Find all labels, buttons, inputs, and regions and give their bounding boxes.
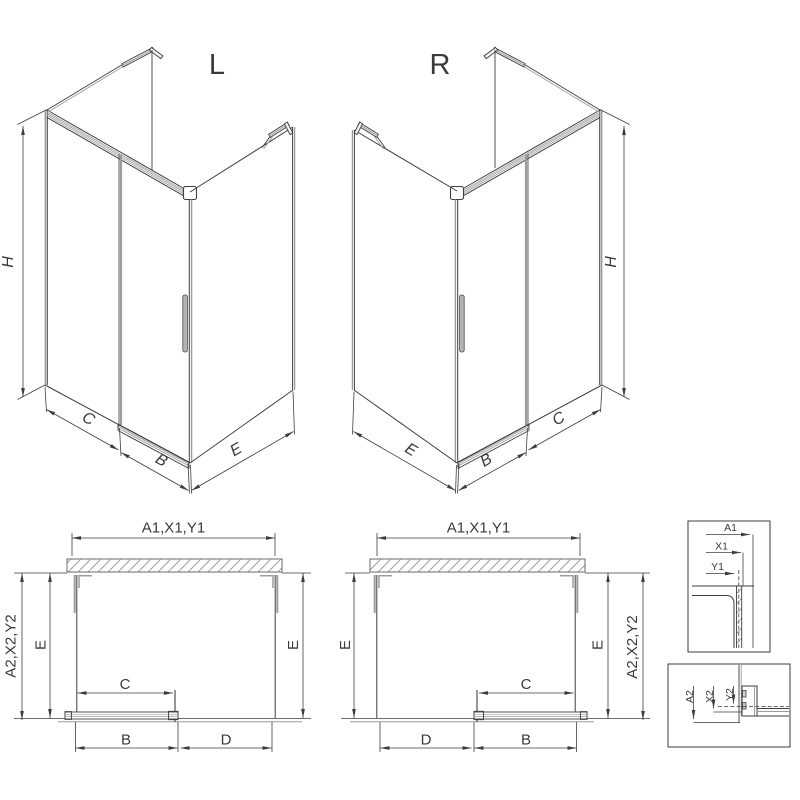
- dim-label-x2: X2: [704, 690, 716, 703]
- detail-view-top: A1 X1 Y1: [688, 521, 770, 652]
- door-handle: [460, 295, 465, 352]
- wall-support-bar-left: [354, 122, 385, 149]
- dim-label-e: E: [402, 440, 420, 460]
- dim-h-left: H: [0, 110, 47, 400]
- door-handle: [183, 295, 188, 352]
- plan-view-right: A1,X1,Y1 E E A2,X2,Y2 C: [337, 520, 650, 753]
- iso-view-right: R: [352, 48, 629, 494]
- dim-label-x1: X1: [715, 541, 728, 553]
- wall-section: [67, 559, 282, 572]
- dim-label-c: C: [521, 676, 532, 693]
- door-track: [474, 711, 587, 719]
- wall-support-bar-left: [47, 48, 163, 171]
- dim-label-b: B: [477, 450, 495, 470]
- dim-label-a2: A2: [684, 690, 696, 703]
- dim-label-e-left: E: [337, 640, 354, 650]
- wall-support-bar-right: [262, 122, 293, 149]
- dim-label-y2: Y2: [724, 688, 736, 701]
- dim-h-right: H: [600, 110, 630, 400]
- iso-left-title: L: [209, 49, 225, 81]
- dim-cbe-left: C B E: [45, 387, 295, 494]
- drawing-svg: L: [0, 0, 800, 800]
- wall-support-bar-right: [484, 48, 600, 169]
- corner-connector: [184, 187, 197, 200]
- dim-label-a1: A1: [724, 522, 737, 534]
- dim-label-b: B: [121, 732, 131, 749]
- dim-label-h: H: [0, 256, 17, 268]
- dim-label-a1: A1,X1,Y1: [447, 520, 510, 537]
- dim-label-b: B: [521, 732, 531, 749]
- door-track: [65, 711, 178, 719]
- dim-label-e: E: [227, 440, 245, 460]
- dim-ebc-right: C B E: [353, 387, 603, 494]
- top-rail: [47, 110, 190, 199]
- dim-label-c: C: [120, 676, 131, 693]
- iso-right-title: R: [430, 49, 451, 81]
- glass-section: [737, 586, 742, 648]
- dim-label-e-right: E: [590, 640, 607, 650]
- dim-label-a2: A2,X2,Y2: [624, 615, 641, 678]
- dim-label-d: D: [421, 732, 432, 749]
- detail-bottom-frame: [668, 664, 790, 747]
- dim-label-a1: A1,X1,Y1: [142, 520, 205, 537]
- dim-label-y1: Y1: [711, 561, 724, 573]
- wall-section: [370, 559, 585, 572]
- dim-label-a2: A2,X2,Y2: [3, 614, 20, 677]
- dim-label-b: B: [152, 451, 170, 471]
- plan-view-left: A1,X1,Y1 A2,X2,Y2 E E C: [3, 520, 312, 753]
- top-rail: [457, 110, 600, 199]
- dim-label-e-right: E: [285, 640, 302, 650]
- dim-label-d: D: [221, 732, 232, 749]
- detail-view-bottom: A2 X2 Y2: [668, 664, 790, 747]
- dim-label-e-left: E: [33, 640, 50, 650]
- iso-view-left: L: [0, 48, 295, 494]
- bottom-track: [458, 424, 529, 469]
- technical-drawing-page: L: [0, 0, 800, 800]
- dim-label-h: H: [603, 256, 620, 268]
